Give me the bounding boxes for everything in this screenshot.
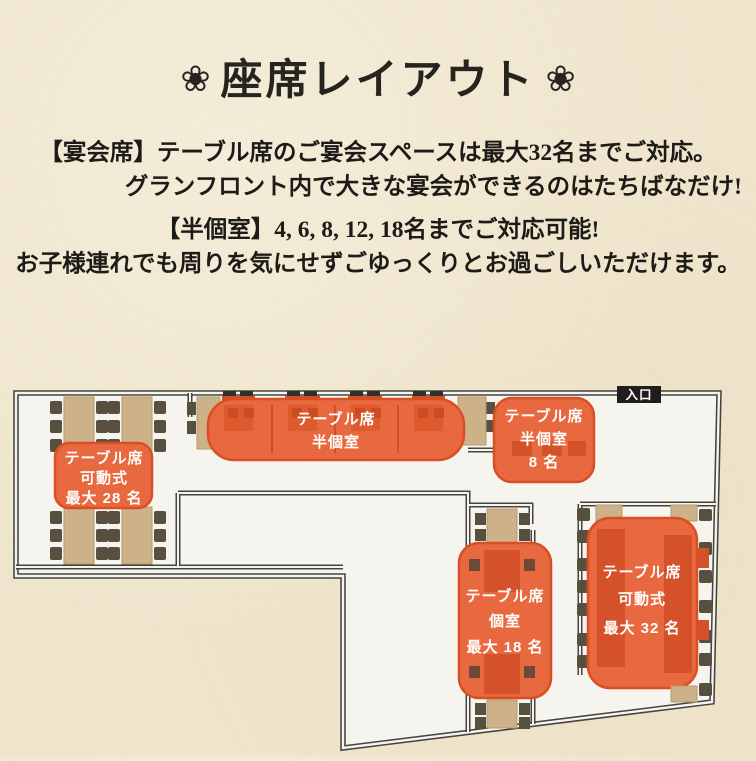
- page-title-text: 座席レイアウト: [220, 58, 535, 104]
- label-private18-line2: 個室: [488, 612, 521, 630]
- chair: [50, 401, 62, 414]
- label-semiprivate8-line1: テーブル席: [504, 407, 583, 425]
- entrance-text: 入口: [625, 388, 652, 402]
- label-semiprivate-main-line2: 半個室: [312, 433, 360, 451]
- intro-line-grandfront: グランフロント内で大きな宴会ができるのはたちばなだけ!: [0, 170, 756, 204]
- intro-text: 【宴会席】テーブル席のご宴会スペースは最大32名までご対応。 グランフロント内で…: [0, 136, 756, 281]
- intro-line-children: お子様連れでも周りを気にせずごゆっくりとお過ごしいただけます。: [0, 247, 756, 281]
- label-movable28-line3: 最大 28 名: [65, 489, 142, 507]
- page-title: ❀座席レイアウト❀: [0, 46, 756, 107]
- intro-line-banquet: 【宴会席】テーブル席のご宴会スペースは最大32名までご対応。: [0, 136, 756, 170]
- entrance-label: 入口: [617, 386, 661, 403]
- intro-line-semiprivate: 【半個室】4, 6, 8, 12, 18名までご対応可能!: [0, 213, 756, 247]
- label-movable28-line1: テーブル席: [64, 449, 143, 467]
- label-private18-line3: 最大 18 名: [466, 638, 543, 656]
- label-movable32-line2: 可動式: [618, 590, 666, 608]
- label-private18-line1: テーブル席: [465, 587, 544, 605]
- flower-icon: ❀: [170, 59, 220, 100]
- label-movable32-line3: 最大 32 名: [603, 619, 680, 637]
- label-movable28-line2: 可動式: [80, 469, 128, 487]
- floor-plan: テーブル席 可動式 最大 28 名 テーブル席 半個室 テーブル席 半個室 8 …: [0, 383, 756, 756]
- flower-icon: ❀: [536, 59, 586, 100]
- label-semiprivate-main-line1: テーブル席: [296, 410, 375, 428]
- label-movable32-line1: テーブル席: [602, 563, 681, 581]
- chair: [577, 508, 590, 521]
- label-semiprivate8-line3: 8 名: [529, 453, 560, 471]
- label-semiprivate8-line2: 半個室: [520, 430, 568, 448]
